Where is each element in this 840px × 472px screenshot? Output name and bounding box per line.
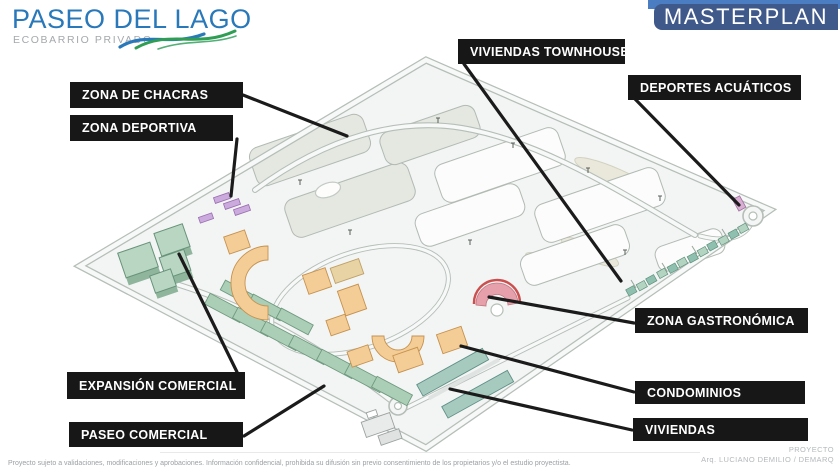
footer-divider <box>160 452 700 453</box>
credit-label: PROYECTO <box>701 445 834 455</box>
label-expansion-comercial: EXPANSIÓN COMERCIAL <box>67 372 245 399</box>
label-condominios: CONDOMINIOS <box>635 381 805 404</box>
label-viviendas: VIVIENDAS <box>633 418 808 441</box>
label-zona-gastronomica: ZONA GASTRONÓMICA <box>635 308 808 333</box>
footer-disclaimer: Proyecto sujeto a validaciones, modifica… <box>8 460 571 467</box>
label-deportes-acuaticos: DEPORTES ACUÁTICOS <box>628 75 801 100</box>
credit-name: Arq. LUCIANO DEMILIO / DEMARQ <box>701 455 834 465</box>
leader-paseo-comercial <box>244 386 324 436</box>
label-zona-de-chacras: ZONA DE CHACRAS <box>70 82 243 108</box>
footer-credits: PROYECTO Arq. LUCIANO DEMILIO / DEMARQ <box>701 445 834 465</box>
label-viviendas-townhouse: VIVIENDAS TOWNHOUSE <box>458 39 625 64</box>
label-zona-deportiva: ZONA DEPORTIVA <box>70 115 233 141</box>
label-paseo-comercial: PASEO COMERCIAL <box>69 422 243 447</box>
